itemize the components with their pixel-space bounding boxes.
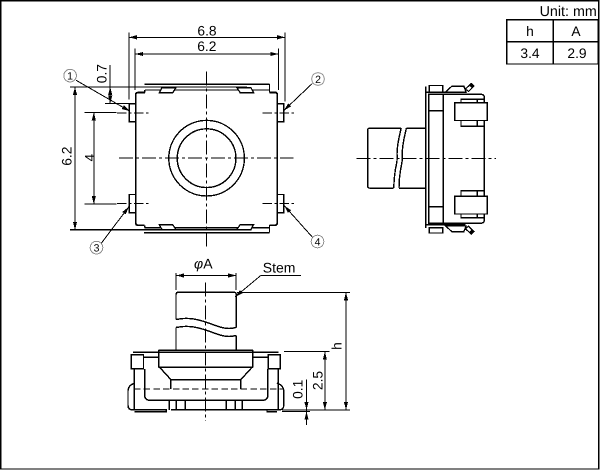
svg-text:2: 2 <box>315 74 321 86</box>
svg-text:3.4: 3.4 <box>520 46 540 61</box>
svg-text:0.1: 0.1 <box>290 380 305 399</box>
svg-text:h: h <box>526 24 534 39</box>
svg-text:A: A <box>571 24 581 39</box>
svg-text:2.5: 2.5 <box>310 371 325 391</box>
svg-text:4: 4 <box>315 236 321 248</box>
svg-text:1: 1 <box>67 70 73 82</box>
svg-text:6.2: 6.2 <box>59 147 74 166</box>
svg-text:6.2: 6.2 <box>197 39 216 54</box>
svg-text:Unit: mm: Unit: mm <box>540 4 597 20</box>
svg-text:3: 3 <box>94 242 100 254</box>
svg-text:2.9: 2.9 <box>567 46 587 61</box>
svg-text:Stem: Stem <box>263 260 296 276</box>
svg-text:h: h <box>329 342 344 350</box>
svg-text:0.7: 0.7 <box>95 64 110 83</box>
svg-text:φA: φA <box>194 256 213 272</box>
svg-text:4: 4 <box>82 154 97 162</box>
svg-text:6.8: 6.8 <box>197 24 217 39</box>
